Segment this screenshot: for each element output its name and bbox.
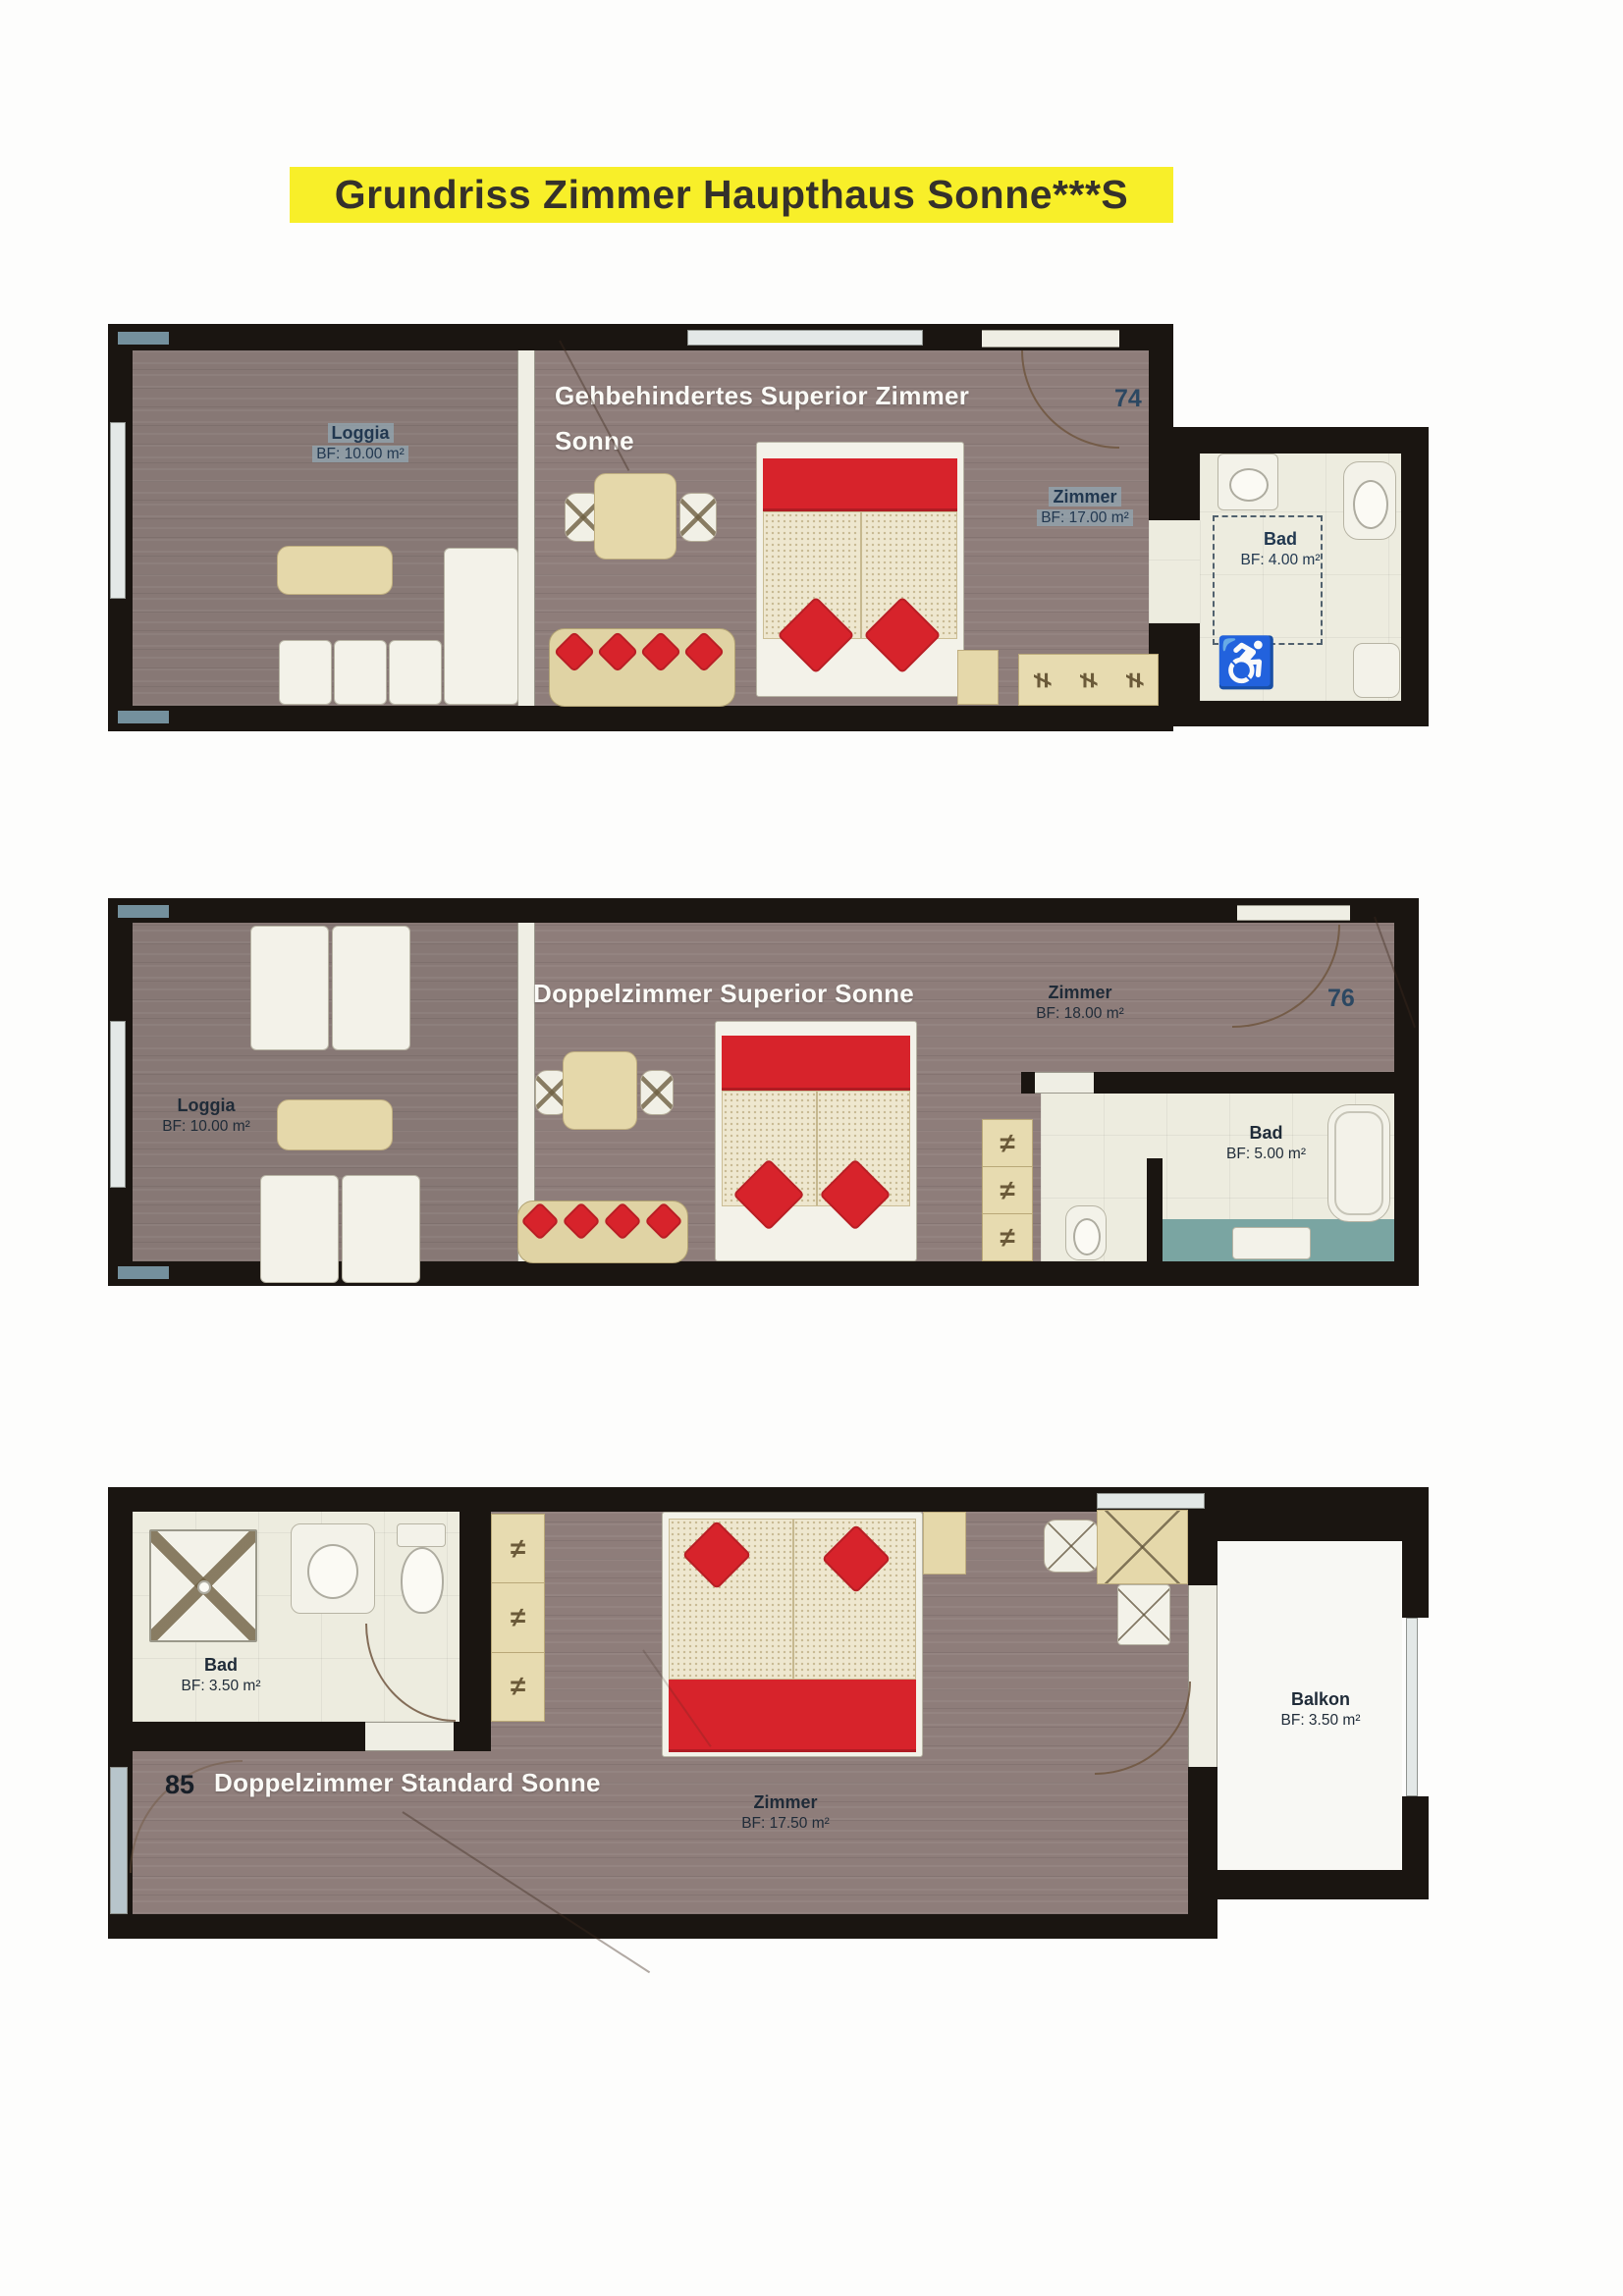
pillow-icon <box>554 631 595 672</box>
balkon-label: Balkon BF: 3.50 m² <box>1262 1688 1380 1732</box>
bed-blanket <box>722 1036 910 1091</box>
floorplan-room-85: Balkon BF: 3.50 m² Bad BF: 3.50 m² ≠ ≠ ≠ <box>108 1487 1429 1939</box>
double-bed <box>715 1021 917 1261</box>
wardrobe-rail: ≠ ≠ ≠ <box>1018 654 1159 706</box>
dining-table <box>563 1051 637 1130</box>
pillow-icon <box>603 1201 642 1241</box>
toilet-bowl <box>1073 1218 1101 1255</box>
room-area: BF: 17.50 m² <box>717 1814 854 1834</box>
pillow-icon <box>683 631 725 672</box>
shower-seat <box>1353 643 1400 698</box>
loggia-label: Loggia BF: 10.00 m² <box>297 422 424 465</box>
room-area: BF: 17.00 m² <box>1037 509 1133 526</box>
balcony-railing <box>1406 1618 1418 1796</box>
hanger-icon: ≠ <box>1121 672 1149 687</box>
toilet <box>1065 1205 1107 1260</box>
entry-door-opening <box>982 330 1119 347</box>
double-bed <box>756 442 964 697</box>
mattress-split <box>816 1092 818 1205</box>
room-name: Bad <box>1225 528 1335 551</box>
sofa <box>517 1201 688 1263</box>
room-area: BF: 5.00 m² <box>1210 1145 1323 1164</box>
plan-name-line2: Sonne <box>555 426 634 456</box>
dining-table <box>594 473 676 560</box>
toilet-bowl <box>1353 480 1388 529</box>
hanger-icon: ≠ <box>511 1673 525 1700</box>
window-divider <box>517 350 535 706</box>
room-area: BF: 10.00 m² <box>312 446 408 462</box>
hanger-icon: ≠ <box>1029 672 1056 687</box>
room-name: Loggia <box>328 423 394 443</box>
plan-name: Doppelzimmer Standard Sonne <box>214 1768 601 1798</box>
room-area: BF: 4.00 m² <box>1225 551 1335 570</box>
wall <box>460 1512 491 1751</box>
lounger <box>444 548 518 705</box>
wall-marker <box>118 711 169 723</box>
wall <box>1402 1796 1429 1870</box>
wall <box>1217 1870 1429 1899</box>
bad-label: Bad BF: 4.00 m² <box>1225 528 1335 571</box>
toilet <box>391 1523 452 1620</box>
nightstand <box>923 1512 966 1575</box>
sink <box>1217 454 1278 510</box>
chair <box>1044 1520 1099 1573</box>
plan-name: Doppelzimmer Superior Sonne <box>533 979 914 1009</box>
hanger-icon: ≠ <box>1075 672 1103 687</box>
chair <box>640 1070 674 1115</box>
room-name: Balkon <box>1262 1688 1380 1711</box>
room-number: 74 <box>1114 385 1142 413</box>
shower <box>149 1529 257 1642</box>
loggia-label: Loggia BF: 10.00 m² <box>145 1095 267 1138</box>
room-name: Loggia <box>145 1095 267 1117</box>
room-area: BF: 3.50 m² <box>1262 1711 1380 1731</box>
zimmer-label: Zimmer BF: 18.00 m² <box>1021 982 1139 1025</box>
hanger-icon: ≠ <box>1000 1224 1014 1252</box>
pillow-icon <box>644 1201 683 1241</box>
room-name: Zimmer <box>1021 982 1139 1004</box>
zimmer-label: Zimmer BF: 17.00 m² <box>1021 486 1149 529</box>
entry-door <box>110 1767 128 1914</box>
lounger <box>332 926 410 1050</box>
wardrobe: ≠ ≠ ≠ <box>491 1514 545 1722</box>
wall <box>454 1722 491 1751</box>
room-number: 85 <box>165 1770 194 1800</box>
lounger <box>260 1175 339 1283</box>
room-number: 76 <box>1327 985 1355 1013</box>
side-table <box>1117 1584 1170 1645</box>
coffee-table <box>277 546 393 595</box>
plan-name-line1: Gehbehindertes Superior Zimmer <box>555 381 969 411</box>
room-name: Zimmer <box>1049 487 1120 507</box>
toilet-tank <box>397 1523 446 1547</box>
pillow-icon <box>597 631 638 672</box>
window <box>687 330 923 346</box>
room-area: BF: 3.50 m² <box>147 1677 295 1696</box>
balcony-door-opening <box>1188 1585 1217 1767</box>
bad-label: Bad BF: 3.50 m² <box>147 1654 295 1697</box>
lounger <box>342 1175 420 1283</box>
toilet <box>1343 461 1396 540</box>
sofa <box>549 628 735 707</box>
chair <box>679 493 717 542</box>
lounger <box>279 640 332 705</box>
hanger-icon: ≠ <box>1000 1130 1014 1157</box>
bad-label: Bad BF: 5.00 m² <box>1210 1122 1323 1165</box>
wardrobe: ≠ ≠ ≠ <box>982 1119 1033 1261</box>
toilet-bowl <box>401 1547 444 1614</box>
wall <box>1147 1158 1163 1261</box>
pillow-icon <box>520 1201 560 1241</box>
shower-drain <box>197 1580 211 1594</box>
pillow-icon <box>640 631 681 672</box>
hanger-icon: ≠ <box>511 1604 525 1631</box>
sink-basin <box>307 1544 358 1599</box>
room-name: Zimmer <box>717 1791 854 1814</box>
hanger-icon: ≠ <box>511 1535 525 1563</box>
floorplan-room-74: Loggia BF: 10.00 m² ≠ ≠ ≠ Gehbehind <box>108 324 1429 731</box>
page-title: Grundriss Zimmer Haupthaus Sonne***S <box>290 167 1173 223</box>
room-name: Bad <box>147 1654 295 1677</box>
wall <box>1217 1487 1429 1541</box>
wall-marker <box>118 1266 169 1279</box>
bad-door-opening <box>1149 520 1200 623</box>
bath-door-opening <box>1035 1072 1094 1094</box>
room-area: BF: 18.00 m² <box>1021 1004 1139 1024</box>
entry-door-opening <box>1237 905 1350 921</box>
bed-blanket <box>763 458 957 511</box>
pillow-icon <box>562 1201 601 1241</box>
wheelchair-icon: ♿ <box>1216 638 1276 687</box>
wall <box>133 1722 365 1751</box>
mattress-split <box>792 1520 794 1679</box>
room-area: BF: 10.00 m² <box>145 1117 267 1137</box>
room-name: Bad <box>1210 1122 1323 1145</box>
coffee-table <box>277 1099 393 1150</box>
mattress-split <box>860 512 862 638</box>
lounger <box>334 640 387 705</box>
lounger <box>250 926 329 1050</box>
window <box>110 422 126 599</box>
wall-marker <box>118 905 169 918</box>
nightstand <box>957 650 999 705</box>
wall-marker <box>118 332 169 345</box>
window <box>110 1021 126 1188</box>
sink <box>291 1523 375 1614</box>
scanned-floorplan-page: Grundriss Zimmer Haupthaus Sonne***S Log… <box>0 0 1623 2296</box>
wall <box>1402 1541 1429 1618</box>
desk <box>1097 1510 1188 1584</box>
sink-basin <box>1229 468 1269 502</box>
shower-tray <box>1232 1227 1311 1259</box>
double-bed <box>662 1512 923 1757</box>
bath-door-opening <box>365 1722 454 1751</box>
floorplan-room-76: Loggia BF: 10.00 m² Doppelzimmer Superio… <box>108 898 1419 1286</box>
lounger <box>389 640 442 705</box>
hanger-icon: ≠ <box>1000 1177 1014 1204</box>
window <box>1097 1493 1205 1509</box>
bathtub-rim <box>1334 1111 1383 1215</box>
bathtub <box>1327 1104 1390 1222</box>
zimmer-label: Zimmer BF: 17.50 m² <box>717 1791 854 1835</box>
